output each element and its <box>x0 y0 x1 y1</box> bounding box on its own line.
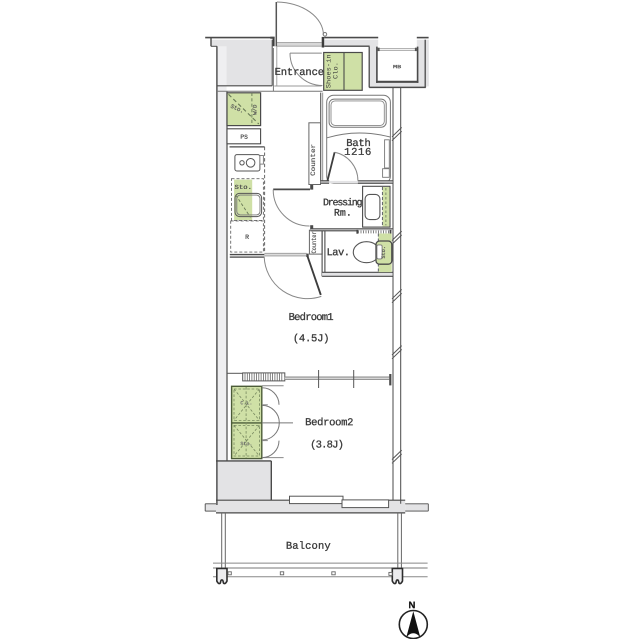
svg-text:PS: PS <box>240 134 248 141</box>
svg-text:Counter: Counter <box>310 144 317 176</box>
svg-text:Sto.: Sto. <box>235 184 253 191</box>
svg-text:Sto.: Sto. <box>240 441 252 447</box>
svg-text:Clo.: Clo. <box>332 62 339 79</box>
svg-text:Bedroom2: Bedroom2 <box>305 417 353 429</box>
svg-text:Counter: Counter <box>311 231 318 253</box>
svg-text:Entrance: Entrance <box>275 67 325 79</box>
svg-text:W/D: W/D <box>251 104 258 115</box>
svg-text:(4.5J): (4.5J) <box>293 333 330 345</box>
svg-text:Shoes-in: Shoes-in <box>325 54 332 88</box>
svg-text:Balcony: Balcony <box>286 541 331 553</box>
svg-text:N: N <box>408 600 415 611</box>
svg-text:R: R <box>245 234 249 241</box>
svg-text:C.L.: C.L. <box>240 400 252 406</box>
svg-text:Dressing: Dressing <box>323 197 363 209</box>
svg-text:1216: 1216 <box>344 147 371 159</box>
svg-text:Lav.: Lav. <box>327 247 351 259</box>
svg-text:Rm.: Rm. <box>334 209 352 220</box>
svg-text:MB: MB <box>393 64 401 70</box>
svg-text:(3.8J): (3.8J) <box>310 439 344 451</box>
svg-text:Sto.: Sto. <box>381 246 387 258</box>
svg-text:Bedroom1: Bedroom1 <box>289 312 334 324</box>
